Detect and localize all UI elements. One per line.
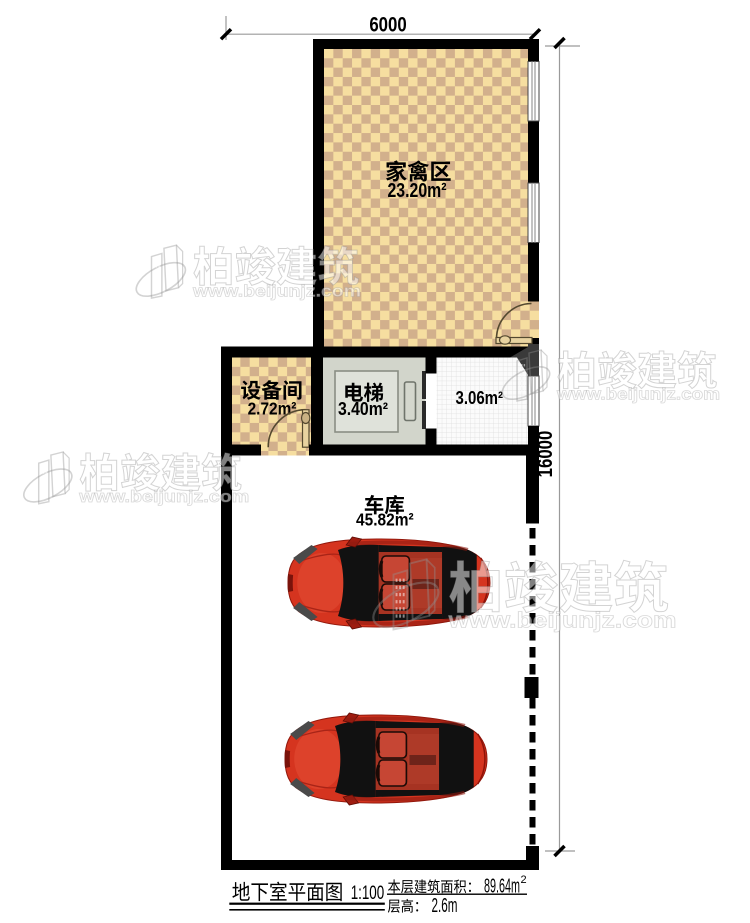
svg-text:3.40m²: 3.40m² bbox=[338, 399, 388, 419]
svg-text:23.20m²: 23.20m² bbox=[388, 180, 447, 202]
svg-text:6000: 6000 bbox=[369, 14, 406, 37]
svg-text:16000: 16000 bbox=[534, 431, 557, 478]
svg-text:www.beijunjz.com: www.beijunjz.com bbox=[556, 385, 720, 404]
svg-text:www.beijunjz.com: www.beijunjz.com bbox=[447, 607, 676, 632]
svg-text:www.beijunjz.com: www.beijunjz.com bbox=[78, 487, 249, 506]
svg-text:www.beijunjz.com: www.beijunjz.com bbox=[192, 282, 361, 301]
svg-text:3.06m²: 3.06m² bbox=[456, 388, 504, 408]
svg-text:45.82m²: 45.82m² bbox=[356, 510, 414, 530]
svg-text:1:100: 1:100 bbox=[351, 883, 385, 904]
svg-text:2.72m²: 2.72m² bbox=[248, 399, 297, 419]
svg-text:2: 2 bbox=[521, 874, 527, 886]
svg-text:2.6m: 2.6m bbox=[432, 895, 458, 917]
